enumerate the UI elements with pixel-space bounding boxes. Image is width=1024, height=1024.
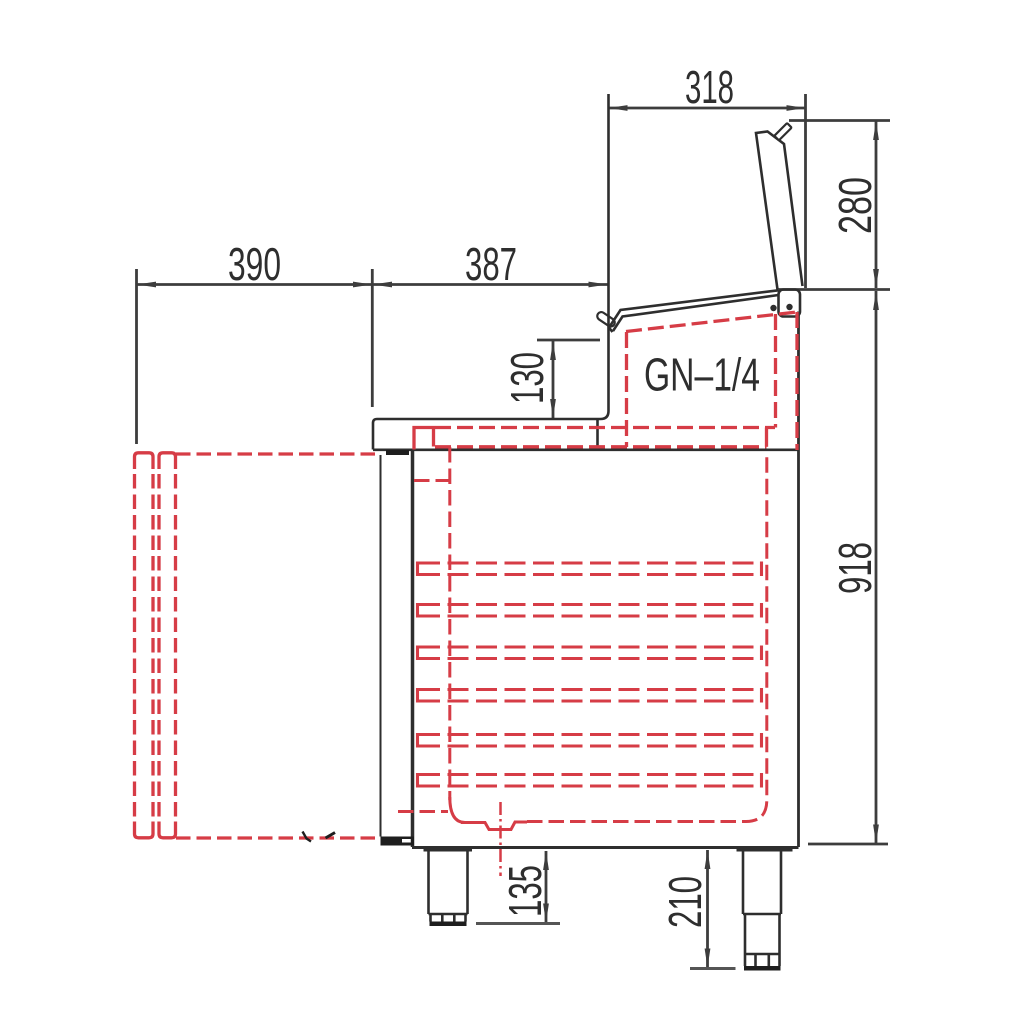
svg-text:210: 210 — [659, 876, 711, 928]
svg-text:318: 318 — [685, 61, 734, 113]
svg-text:135: 135 — [499, 865, 551, 917]
svg-text:130: 130 — [501, 352, 553, 404]
svg-text:918: 918 — [829, 542, 881, 594]
svg-text:390: 390 — [228, 238, 281, 290]
svg-text:280: 280 — [829, 177, 881, 234]
svg-text:387: 387 — [465, 238, 517, 290]
svg-text:GN–1/4: GN–1/4 — [644, 349, 760, 401]
